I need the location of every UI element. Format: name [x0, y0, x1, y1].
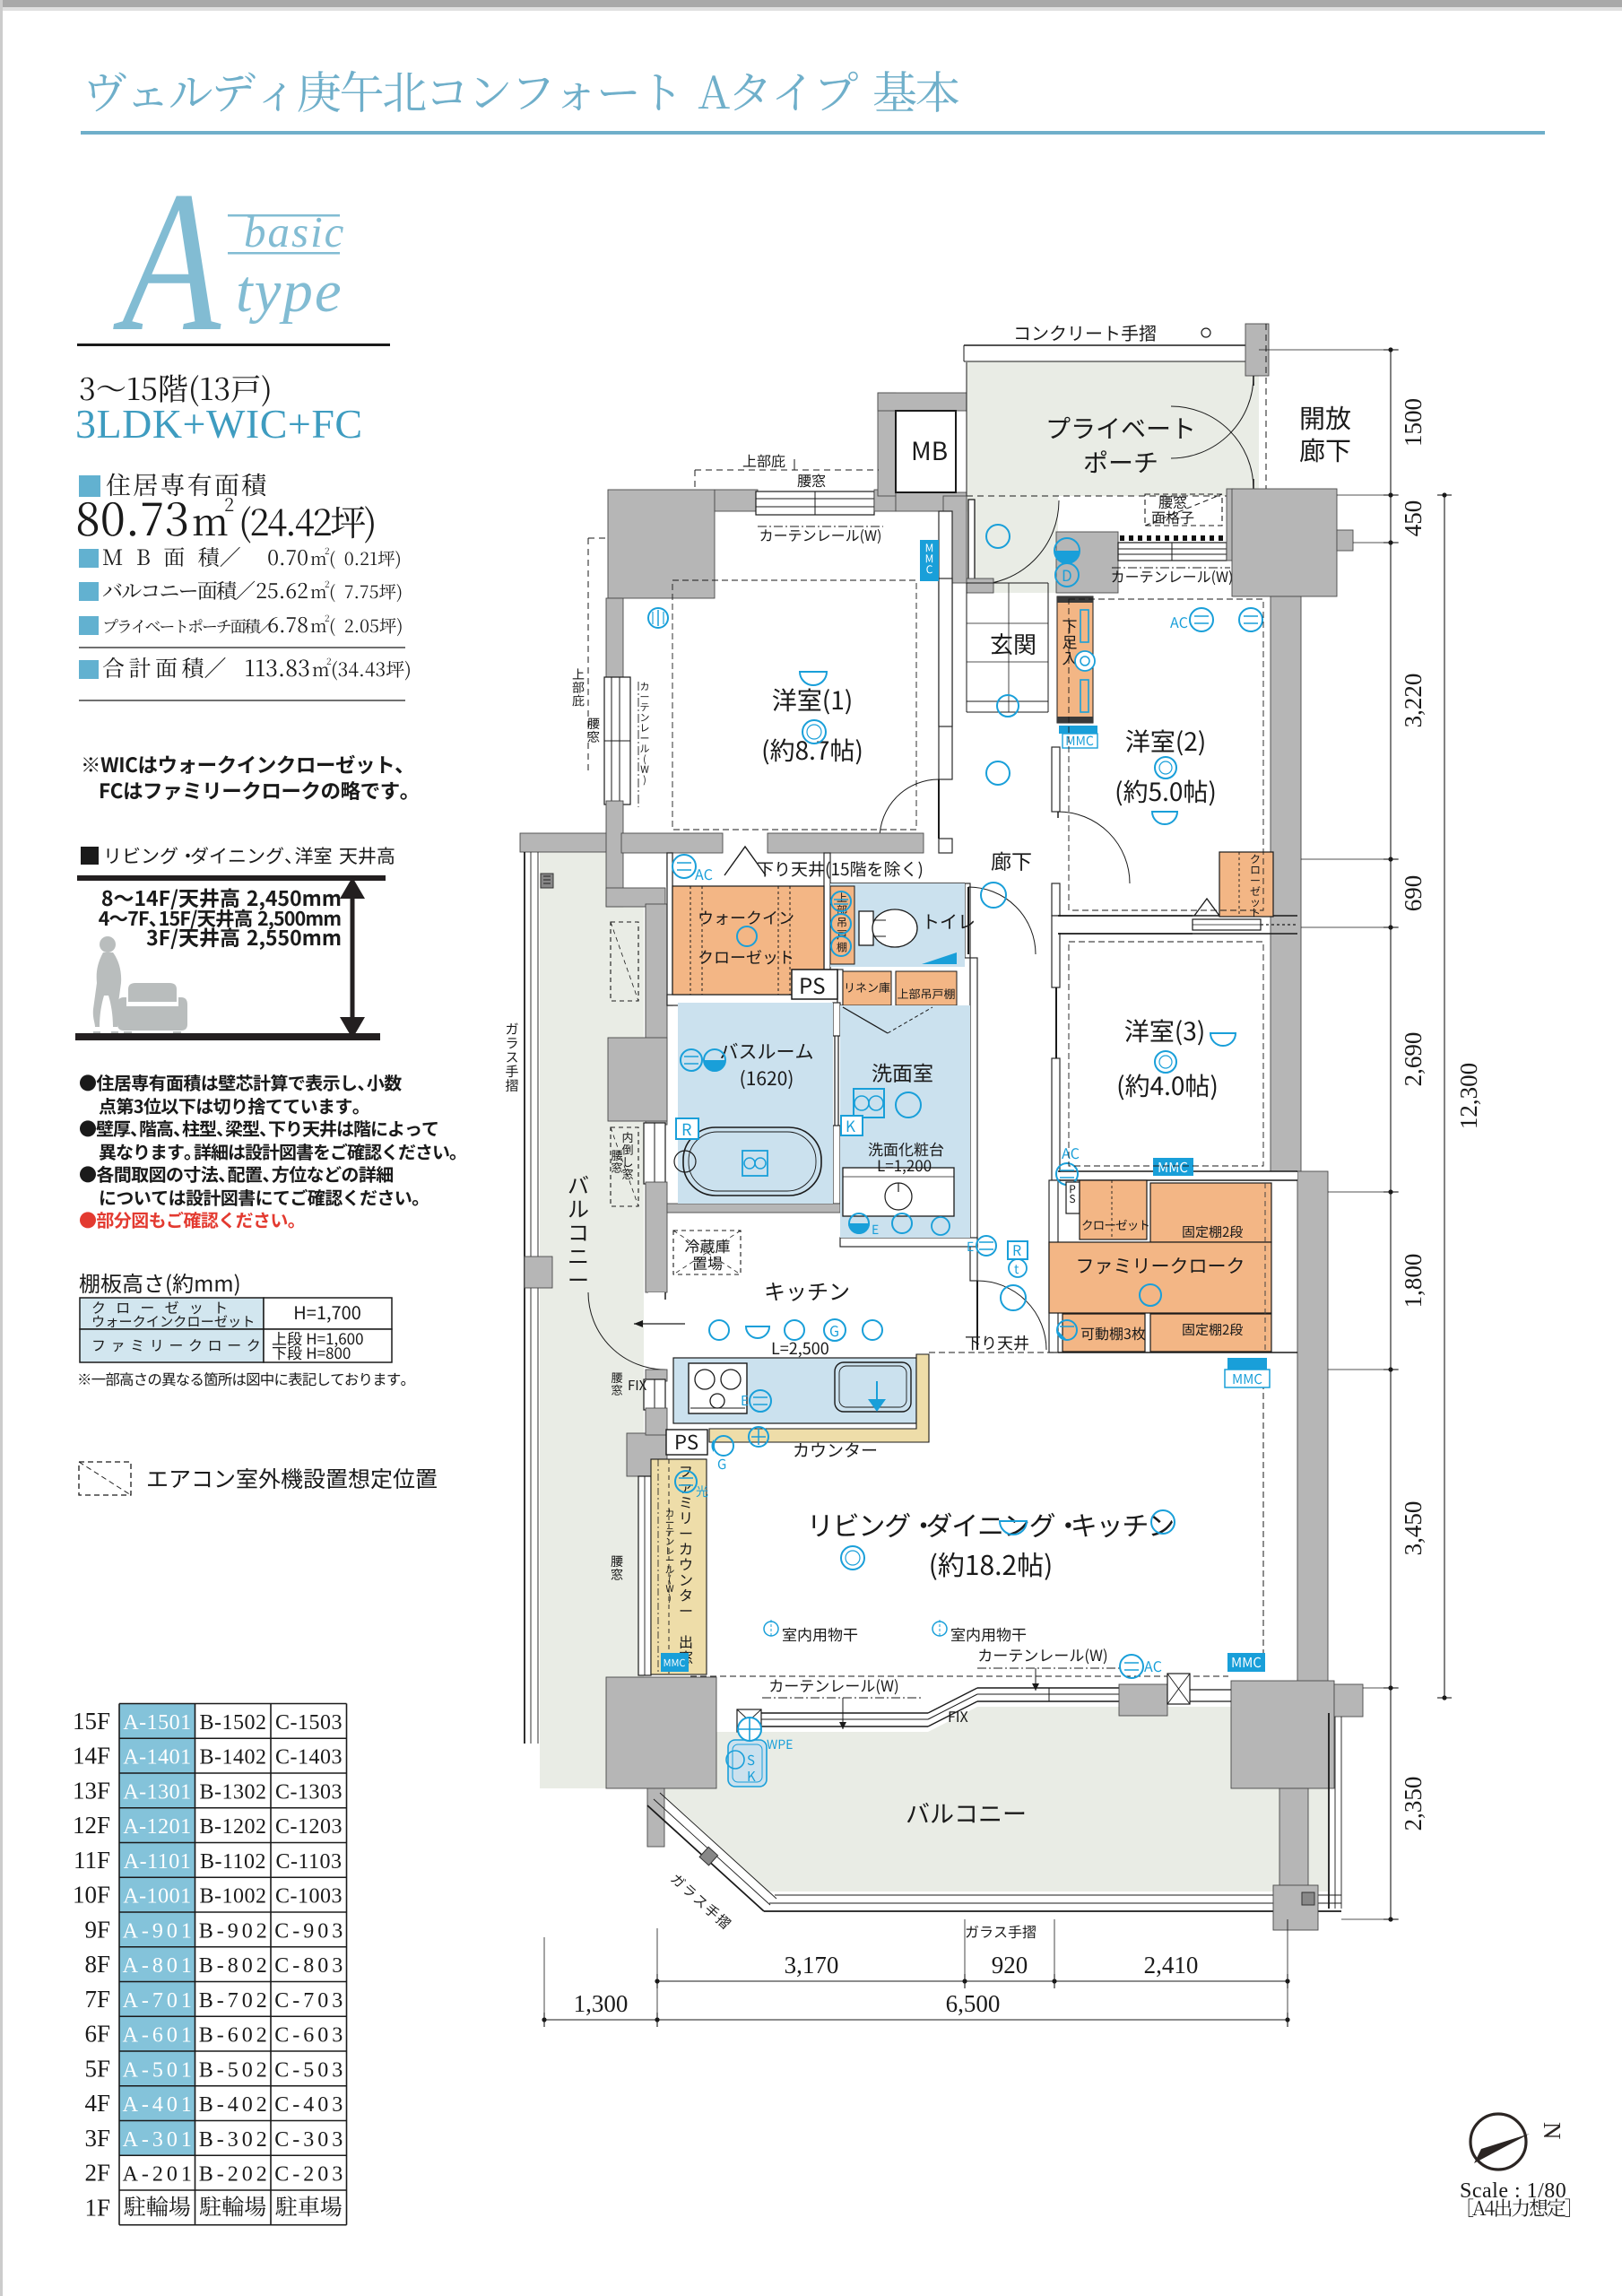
svg-text:B-502: B-502	[199, 2058, 271, 2082]
svg-text:3,450: 3,450	[1400, 1501, 1427, 1556]
svg-text:A-1201: A-1201	[123, 1815, 191, 1839]
svg-text:3,220: 3,220	[1400, 674, 1427, 728]
svg-text:N: N	[1539, 2122, 1566, 2140]
svg-text:C-703: C-703	[274, 1989, 346, 2013]
svg-text:C-903: C-903	[274, 1919, 346, 1943]
svg-text:11F: 11F	[74, 1847, 110, 1874]
svg-text:B-202: B-202	[199, 2163, 271, 2187]
svg-text:1,300: 1,300	[574, 1990, 629, 2017]
svg-text:Scale : 1/80: Scale : 1/80	[1460, 2179, 1566, 2203]
svg-text:B-602: B-602	[199, 2024, 271, 2048]
svg-text:1,800: 1,800	[1400, 1254, 1427, 1309]
svg-text:A-1301: A-1301	[123, 1780, 191, 1804]
svg-text:12F: 12F	[73, 1812, 110, 1839]
svg-text:C-1303: C-1303	[275, 1780, 343, 1804]
svg-text:C-1003: C-1003	[275, 1885, 343, 1909]
svg-text:A-1101: A-1101	[124, 1850, 191, 1874]
svg-text:A-901: A-901	[123, 1919, 195, 1943]
svg-text:C-403: C-403	[274, 2093, 346, 2117]
svg-text:C-603: C-603	[274, 2024, 346, 2048]
svg-text:C-1203: C-1203	[275, 1815, 343, 1839]
svg-text:C-503: C-503	[274, 2058, 346, 2082]
svg-text:8F: 8F	[84, 1951, 110, 1978]
svg-text:2,350: 2,350	[1400, 1777, 1427, 1831]
svg-text:B-1002: B-1002	[200, 1885, 267, 1909]
svg-text:basic: basic	[244, 207, 345, 257]
svg-text:B-402: B-402	[199, 2093, 271, 2117]
svg-text:A-201: A-201	[123, 2163, 195, 2187]
svg-text:C-1503: C-1503	[275, 1711, 343, 1735]
svg-text:3F: 3F	[84, 2125, 110, 2152]
svg-text:13F: 13F	[73, 1777, 110, 1804]
svg-text:6,500: 6,500	[946, 1990, 1001, 2017]
svg-text:C-1103: C-1103	[275, 1850, 342, 1874]
svg-text:1500: 1500	[1400, 398, 1427, 447]
svg-text:5F: 5F	[84, 2055, 110, 2082]
svg-text:2F: 2F	[84, 2160, 110, 2187]
svg-text:B-802: B-802	[199, 1954, 271, 1978]
svg-text:B-302: B-302	[199, 2128, 271, 2152]
svg-text:B-1202: B-1202	[200, 1815, 267, 1839]
svg-text:6F: 6F	[84, 2021, 110, 2048]
svg-text:A: A	[112, 150, 221, 374]
svg-text:4F: 4F	[84, 2090, 110, 2117]
svg-text:3LDK+WIC+FC: 3LDK+WIC+FC	[75, 401, 363, 447]
svg-text:A-301: A-301	[123, 2128, 195, 2152]
svg-text:B-902: B-902	[199, 1919, 271, 1943]
svg-text:C-1403: C-1403	[275, 1746, 343, 1770]
svg-text:7F: 7F	[84, 1986, 110, 2013]
svg-text:10F: 10F	[73, 1882, 110, 1909]
svg-text:A-1001: A-1001	[123, 1885, 191, 1909]
svg-text:C-803: C-803	[274, 1954, 346, 1978]
svg-text:A-1401: A-1401	[123, 1746, 191, 1770]
svg-text:C-303: C-303	[274, 2128, 346, 2152]
svg-text:12,300: 12,300	[1455, 1063, 1482, 1129]
svg-text:2,690: 2,690	[1400, 1032, 1427, 1087]
svg-text:type: type	[236, 258, 343, 325]
svg-text:B-1102: B-1102	[200, 1850, 266, 1874]
svg-text:1F: 1F	[84, 2194, 110, 2221]
svg-text:B-1302: B-1302	[200, 1780, 267, 1804]
svg-text:B-1502: B-1502	[200, 1711, 267, 1735]
svg-text:B-1402: B-1402	[200, 1746, 267, 1770]
svg-text:A-801: A-801	[123, 1954, 195, 1978]
svg-text:A-701: A-701	[123, 1989, 195, 2013]
svg-text:A-601: A-601	[123, 2024, 195, 2048]
svg-text:3,170: 3,170	[785, 1952, 839, 1979]
svg-text:690: 690	[1400, 875, 1427, 912]
svg-text:450: 450	[1400, 500, 1427, 537]
svg-text:B-702: B-702	[199, 1989, 271, 2013]
svg-text:2,410: 2,410	[1144, 1952, 1199, 1979]
svg-text:15F: 15F	[73, 1708, 110, 1735]
svg-text:C-203: C-203	[274, 2163, 346, 2187]
svg-text:A-401: A-401	[123, 2093, 195, 2117]
svg-text:A-1501: A-1501	[123, 1711, 191, 1735]
svg-text:920: 920	[992, 1952, 1028, 1979]
svg-text:A-501: A-501	[123, 2058, 195, 2082]
svg-text:14F: 14F	[73, 1743, 110, 1770]
svg-text:9F: 9F	[84, 1916, 110, 1943]
